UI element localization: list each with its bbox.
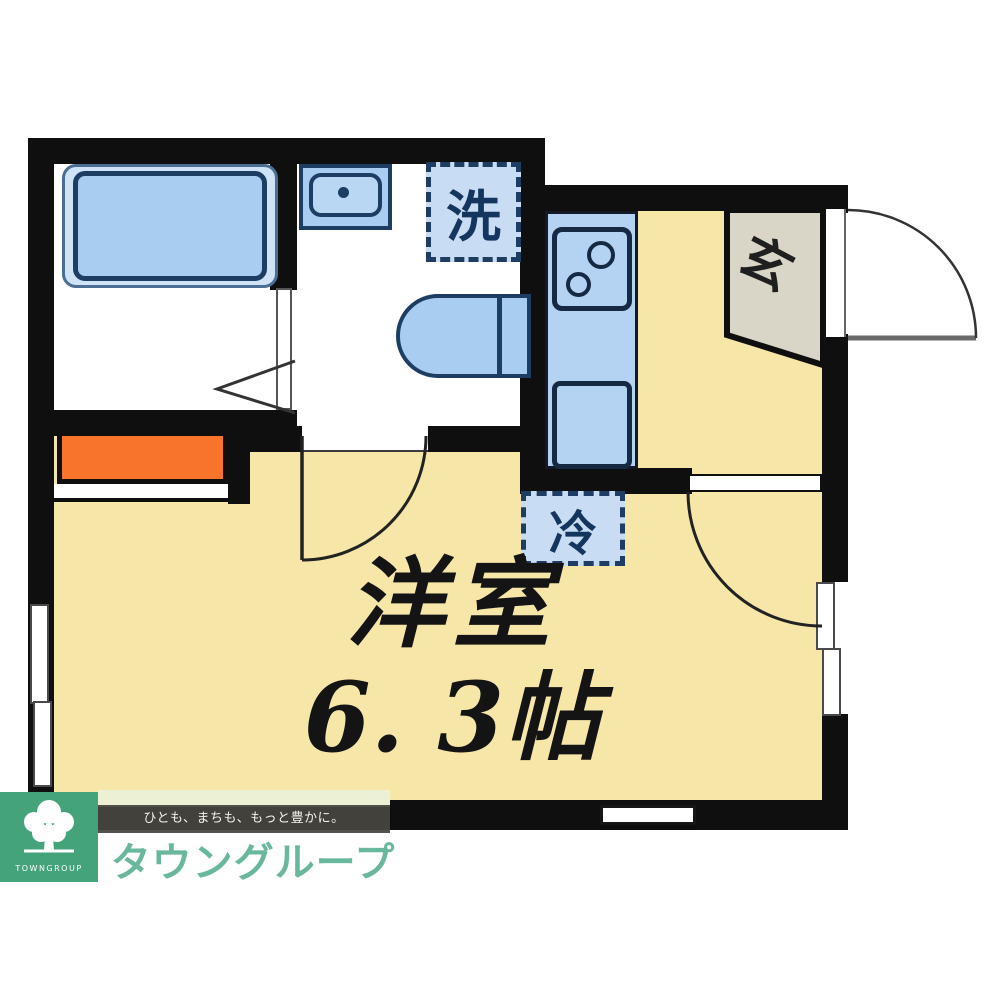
bath-folding-door-arrow bbox=[205, 355, 300, 417]
right-window-pane-lower bbox=[822, 648, 841, 716]
main-room-name: 洋室 bbox=[280, 556, 625, 654]
logo-tagline-band: ひとも、まちも、もっと豊かに。 bbox=[98, 805, 390, 833]
vanity-faucet-dot bbox=[338, 187, 349, 198]
wall-stub-right-of-shelf bbox=[228, 426, 250, 504]
floor-plan-canvas: 洗 玄 冷 洋室 6. 3帖 ひとも、まちも、もっと豊かに。 bbox=[0, 0, 1000, 1000]
orange-shelf bbox=[57, 430, 228, 484]
entrance-door bbox=[842, 202, 982, 342]
company-name-reflection: タウングループ bbox=[108, 867, 398, 887]
main-room-size: 6. 3帖 bbox=[262, 670, 642, 766]
kitchen-sink bbox=[552, 381, 632, 469]
toilet bbox=[396, 294, 531, 378]
stove-burner-1 bbox=[587, 241, 615, 269]
bottom-window bbox=[600, 805, 696, 825]
stove-unit bbox=[552, 227, 632, 311]
toilet-tank-divider bbox=[497, 296, 502, 376]
logo-mark-text: TOWNGROUP bbox=[0, 864, 98, 873]
logo-square: TOWNGROUP bbox=[0, 792, 98, 882]
tree-icon bbox=[14, 796, 84, 858]
washer-space-box: 洗 bbox=[426, 162, 521, 262]
left-window-pane-lower bbox=[33, 701, 52, 787]
washer-label: 洗 bbox=[446, 172, 501, 252]
kitchen-door bbox=[680, 484, 830, 634]
stove-burner-2 bbox=[566, 272, 591, 297]
bathtub bbox=[73, 171, 267, 281]
logo-tagline: ひとも、まちも、もっと豊かに。 bbox=[143, 811, 344, 826]
shelf-door-strip bbox=[54, 484, 228, 502]
left-window-pane-upper bbox=[30, 604, 49, 704]
